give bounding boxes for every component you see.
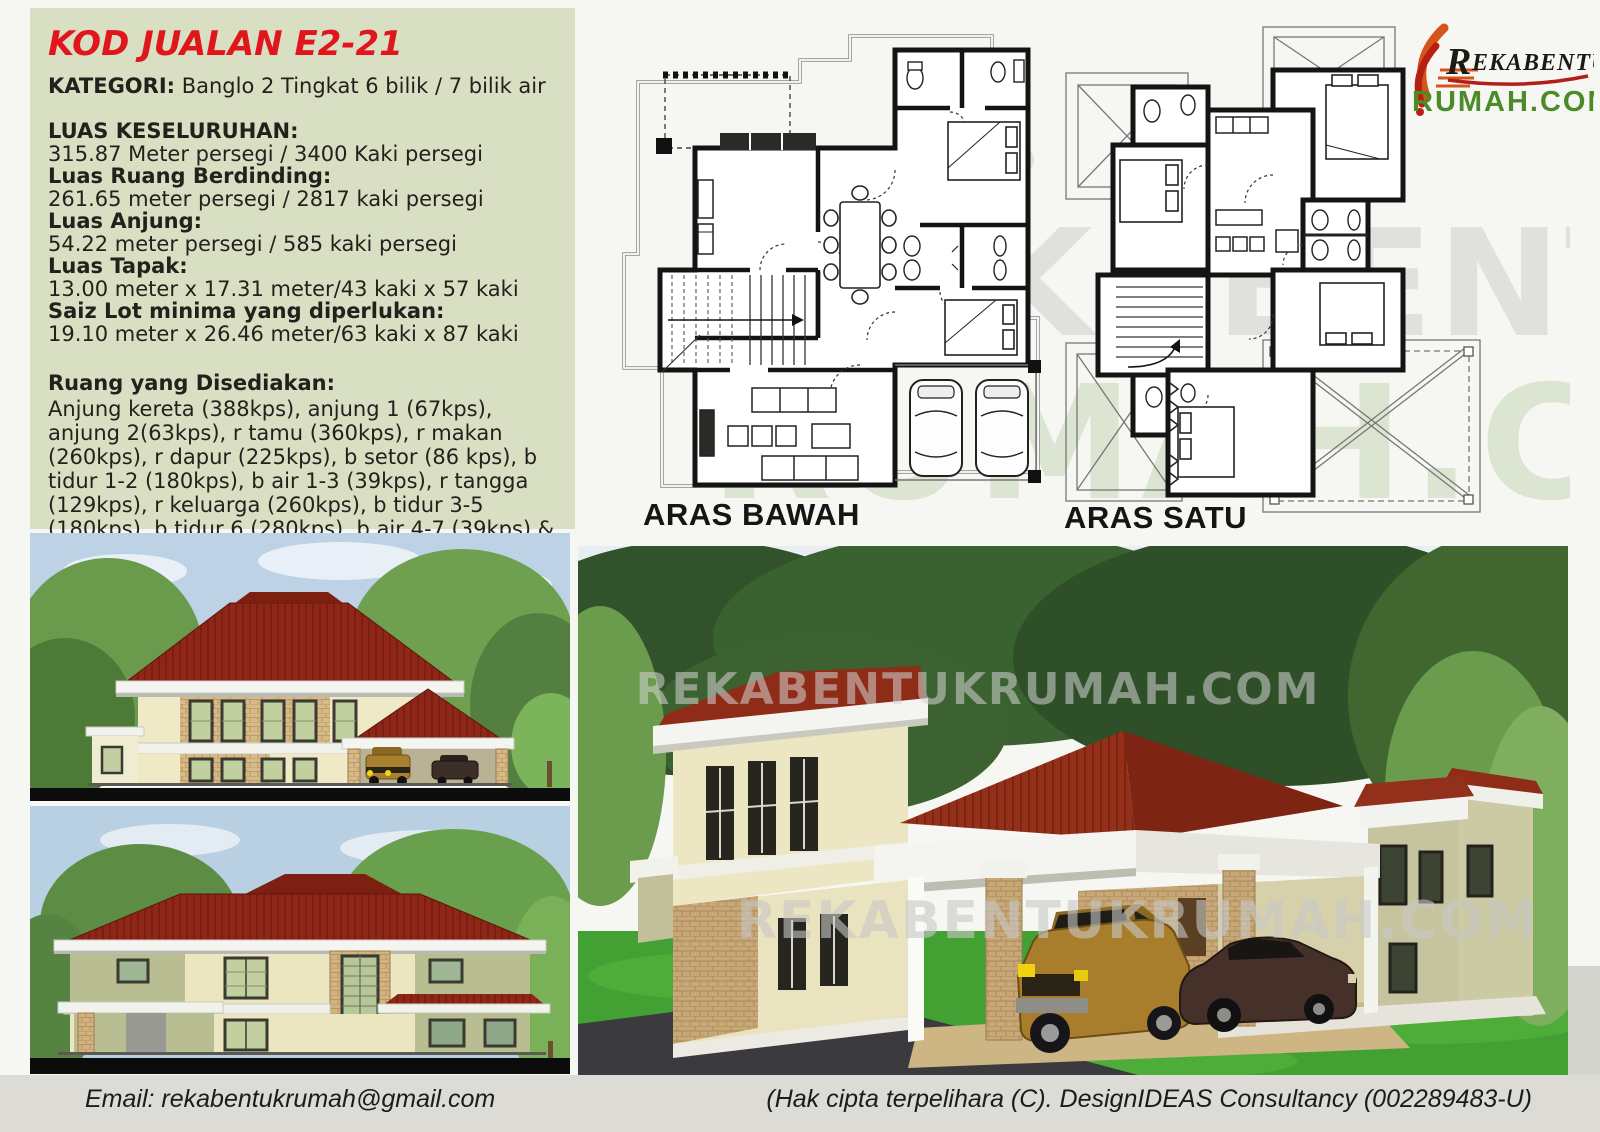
wing-fascia	[378, 1004, 550, 1013]
rekabentukrumah-logo: R EKABENTUK RUMAH.COM	[1382, 18, 1594, 118]
bed	[1326, 75, 1388, 159]
roof-ridge	[235, 592, 343, 603]
wing-window	[102, 747, 122, 773]
car-icon	[976, 380, 1028, 476]
page-title: KOD JUALAN E2-21	[48, 24, 557, 64]
side-elevation-render	[30, 806, 570, 1074]
cornice-band	[116, 681, 464, 693]
spec-value: 315.87 Meter persegi / 3400 Kaki persegi	[48, 143, 557, 166]
first-floor-label: ARAS SATU	[1064, 500, 1247, 536]
page-edge-strip	[1568, 966, 1600, 1075]
footer-bar: Email: rekabentukrumah@gmail.com (Hak ci…	[0, 1075, 1600, 1132]
ground-bar	[30, 1058, 570, 1074]
footer-copyright: (Hak cipta terpelihara (C). DesignIDEAS …	[766, 1085, 1532, 1114]
ground-floor-label: ARAS BAWAH	[643, 497, 860, 533]
ground-bar	[30, 788, 570, 801]
rooms-heading: Ruang yang Disediakan:	[48, 371, 557, 395]
bed	[1120, 160, 1182, 222]
spec-list: LUAS KESELURUHAN: 315.87 Meter persegi /…	[48, 120, 557, 345]
logo-domain: RUMAH.COM	[1412, 86, 1594, 118]
brick-pillar	[348, 749, 360, 785]
spec-value: 54.22 meter persegi / 585 kaki persegi	[48, 233, 557, 256]
spec-value: 261.65 meter persegi / 2817 kaki persegi	[48, 188, 557, 211]
brochure-page: { "info": { "title": "KOD JUALAN E2-21",…	[0, 0, 1600, 1132]
logo-rest: EKABENTUK	[1471, 50, 1594, 76]
footer-email: Email: rekabentukrumah@gmail.com	[85, 1085, 495, 1114]
spec-value: 19.10 meter x 26.46 meter/63 kaki x 87 k…	[48, 323, 557, 346]
ground-floor-plan	[600, 20, 1055, 500]
fascia-shadow	[54, 951, 546, 954]
bed	[945, 300, 1017, 355]
wing-cornice	[86, 727, 144, 736]
spec-label: Luas Anjung:	[48, 210, 557, 233]
bed	[948, 122, 1020, 180]
category-label: KATEGORI:	[48, 74, 175, 98]
front-elevation-render	[30, 533, 570, 801]
cornice-shadow	[116, 693, 464, 697]
spec-value: 13.00 meter x 17.31 meter/43 kaki x 57 k…	[48, 278, 557, 301]
category-line: KATEGORI: Banglo 2 Tingkat 6 bilik / 7 b…	[48, 74, 557, 98]
bed	[1320, 283, 1384, 345]
pillar-cap	[981, 862, 1027, 878]
porch	[58, 1002, 223, 1054]
logo-initial: R	[1445, 41, 1471, 83]
car-icon	[910, 380, 962, 476]
left-wing-wall	[638, 874, 673, 943]
bed	[1178, 407, 1234, 477]
watermark-text: REKABENTUKRUMAH.COM	[737, 891, 1539, 951]
ground-line	[88, 783, 512, 786]
brick-pillar	[496, 749, 508, 785]
category-value: Banglo 2 Tingkat 6 bilik / 7 bilik air	[175, 74, 546, 98]
spec-label: Luas Tapak:	[48, 255, 557, 278]
carport-beam	[342, 738, 514, 749]
spec-label: LUAS KESELURUHAN:	[48, 120, 557, 143]
info-panel: KOD JUALAN E2-21 KATEGORI: Banglo 2 Ting…	[30, 8, 575, 529]
perspective-render: REKABENTUKRUMAH.COM REKABENTUKRUMAH.COM	[578, 546, 1568, 1075]
watermark-text: REKABENTUKRUMAH.COM	[636, 664, 1321, 715]
fascia-band	[54, 940, 546, 951]
left-tower-windows	[706, 757, 818, 860]
pillar-cap	[1218, 854, 1260, 870]
spec-label: Saiz Lot minima yang diperlukan:	[48, 300, 557, 323]
spec-label: Luas Ruang Berdinding:	[48, 165, 557, 188]
ground-line	[58, 1052, 546, 1055]
logo-wordmark: R EKABENTUK	[1445, 41, 1594, 83]
